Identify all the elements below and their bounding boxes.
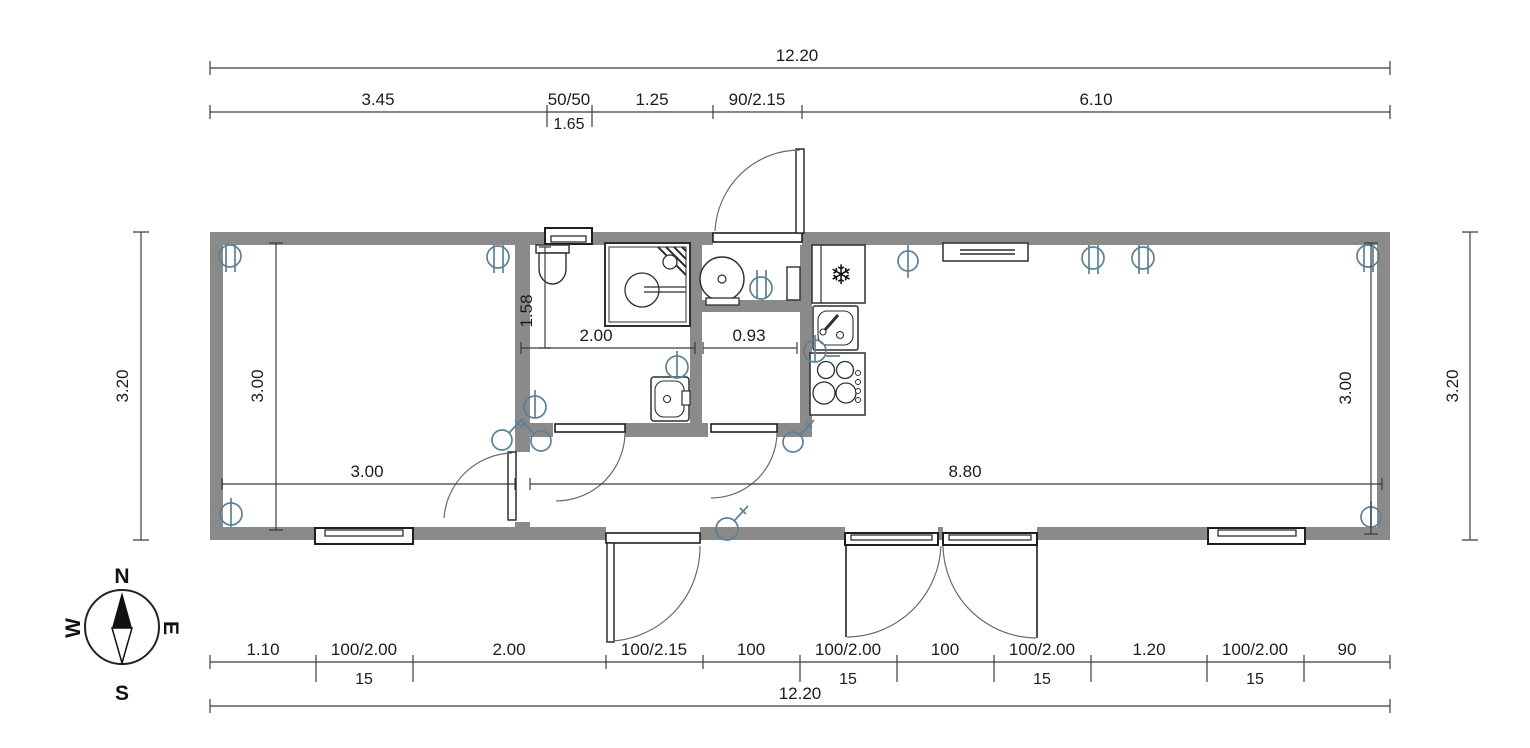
floor-plan-canvas: ❄ xyxy=(0,0,1530,748)
dim-interior-widths: 3.00 8.80 xyxy=(222,462,1382,490)
dim-label-sill: 1.65 xyxy=(553,116,584,133)
dim-label-right-outer: 3.20 xyxy=(1443,369,1462,402)
socket-single-icon xyxy=(220,498,242,527)
gap-bedroom-door xyxy=(515,452,530,522)
socket-double-icon xyxy=(1082,245,1104,274)
dim-bedroom-depth: 3.00 xyxy=(248,243,283,530)
dim-label-bedroom-depth: 3.00 xyxy=(248,369,267,402)
compass-label-north: N xyxy=(114,565,129,588)
dim-label: 3.45 xyxy=(361,90,394,109)
dimensions: 12.20 3.45 50/50 1.25 90/2.15 6.10 1.65 … xyxy=(113,46,1478,713)
french-window-right-swing-arc xyxy=(943,546,1036,638)
compass-rose: N S W E xyxy=(62,565,182,705)
french-window-left xyxy=(845,533,941,637)
compass-label-east: E xyxy=(159,621,182,635)
doors xyxy=(444,149,804,642)
bedroom-door xyxy=(444,452,516,520)
dim-right-outer: 3.20 xyxy=(1443,232,1478,540)
dim-label-left-outer: 3.20 xyxy=(113,369,132,402)
dim-label-living-width: 8.80 xyxy=(948,462,981,481)
dim-top-overall: 12.20 xyxy=(210,46,1390,75)
window-living xyxy=(1208,528,1305,544)
dim-bottom-overall: 12.20 xyxy=(210,684,1390,713)
compass-label-west: W xyxy=(62,618,85,638)
dim-label: 100 xyxy=(737,640,765,659)
socket-single-icon xyxy=(898,245,918,278)
dim-label: 1.20 xyxy=(1132,640,1165,659)
dim-label: 100/2.00 xyxy=(815,640,881,659)
wall-right xyxy=(1377,232,1390,540)
dim-label: 100/2.00 xyxy=(331,640,397,659)
dim-label: 2.00 xyxy=(492,640,525,659)
dim-label-bathroom-width: 2.00 xyxy=(579,326,612,345)
floor-plan-drawing: ❄ xyxy=(0,0,1530,748)
dim-bathroom-utility: 2.00 0.93 xyxy=(521,326,797,354)
dim-label: 100/2.00 xyxy=(1222,640,1288,659)
shower-rose xyxy=(625,273,659,307)
dim-label-sill: 15 xyxy=(355,671,373,688)
french-window-left-swing-arc xyxy=(847,546,941,637)
dim-top-row: 3.45 50/50 1.25 90/2.15 6.10 1.65 xyxy=(210,90,1390,133)
boiler xyxy=(787,267,800,300)
compass-needle-south xyxy=(112,628,132,663)
dim-label: 90 xyxy=(1338,640,1357,659)
washbasin-faucet xyxy=(682,391,690,405)
dim-label: 1.25 xyxy=(635,90,668,109)
socket-double-icon xyxy=(750,270,772,299)
dim-label: 100/2.15 xyxy=(621,640,687,659)
shower-drain xyxy=(663,255,677,269)
dim-label-top-overall: 12.20 xyxy=(776,46,819,65)
utility-fixtures xyxy=(700,257,800,305)
dim-left-outer: 3.20 xyxy=(113,232,149,540)
bathroom-washbasin xyxy=(651,377,690,421)
dim-label-bathroom-depth: 1.58 xyxy=(517,294,536,327)
socket-double-icon xyxy=(1357,245,1379,272)
dim-living-depth: 3.00 xyxy=(1336,243,1378,534)
dim-label: 50/50 xyxy=(548,90,591,109)
compass-label-south: S xyxy=(115,682,129,705)
fridge: ❄ xyxy=(812,245,865,303)
terrace-door xyxy=(606,533,700,642)
shower xyxy=(605,243,690,326)
entry-door-top xyxy=(713,149,804,242)
socket-single-icon xyxy=(666,351,688,378)
dim-label-living-depth: 3.00 xyxy=(1336,371,1355,404)
fridge-snowflake-icon: ❄ xyxy=(830,260,853,291)
dim-label-sill: 15 xyxy=(1246,671,1264,688)
window-bedroom xyxy=(315,528,413,544)
socket-double-icon xyxy=(487,245,509,273)
dim-label: 100/2.00 xyxy=(1009,640,1075,659)
dim-label: 1.10 xyxy=(246,640,279,659)
dim-label: 90/2.15 xyxy=(729,90,786,109)
toilet xyxy=(536,245,569,284)
dim-label-bedroom-width: 3.00 xyxy=(350,462,383,481)
washing-machine xyxy=(700,257,744,305)
dim-label-sill: 15 xyxy=(1033,671,1051,688)
dim-label-bottom-overall: 12.20 xyxy=(779,684,822,703)
bathroom-fixtures xyxy=(536,243,690,421)
dim-label-sill: 15 xyxy=(839,671,857,688)
wall-left xyxy=(210,232,223,540)
dim-label: 6.10 xyxy=(1079,90,1112,109)
dim-label-utility-width: 0.93 xyxy=(732,326,765,345)
kitchen-sink xyxy=(813,306,858,350)
kitchen-fixtures: ❄ xyxy=(810,243,1028,415)
french-window-right xyxy=(943,533,1037,638)
window-50x50 xyxy=(545,228,592,244)
dim-bottom-row: 1.10 100/2.00 2.00 100/2.15 100 100/2.00… xyxy=(210,640,1390,688)
cooker-hood xyxy=(943,243,1028,261)
dim-label: 100 xyxy=(931,640,959,659)
socket-double-icon xyxy=(1132,245,1154,274)
compass-needle-north xyxy=(112,592,132,628)
partition-bathroom-right xyxy=(690,245,702,423)
